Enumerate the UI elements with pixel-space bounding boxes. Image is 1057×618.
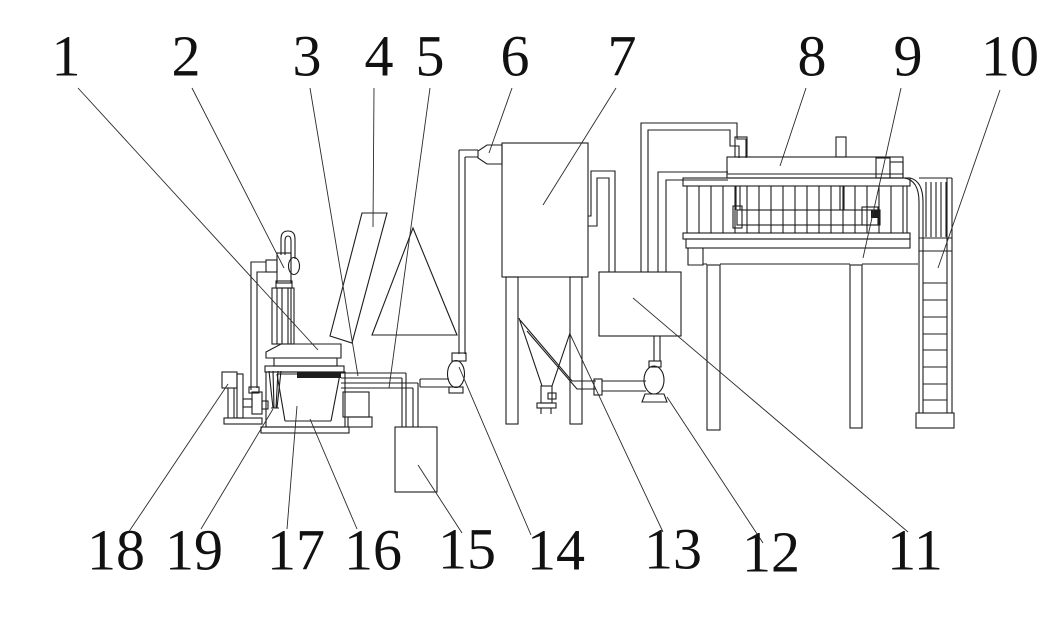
callout-label-16: 16 [344, 517, 402, 582]
platen-stack [265, 344, 344, 372]
callout-label-7: 7 [608, 23, 637, 88]
leader-8 [780, 88, 806, 166]
outlet-flange [537, 403, 556, 408]
vessel-leg-left [506, 277, 518, 424]
pump-base [642, 394, 667, 402]
platen [266, 344, 341, 358]
callout-label-3: 3 [293, 23, 322, 88]
callout-label-19: 19 [165, 517, 223, 582]
knob [289, 258, 300, 275]
top-cover [727, 157, 903, 178]
callout-label-12: 12 [742, 519, 800, 584]
funnel-outlet [541, 386, 552, 403]
callout-label-14: 14 [527, 517, 585, 582]
callout-label-9: 9 [894, 23, 923, 88]
frame-leg-left [707, 265, 720, 430]
callout-label-18: 18 [87, 517, 145, 582]
pump-cap [452, 353, 466, 361]
collection-box [395, 427, 437, 492]
tank-basin [277, 374, 340, 421]
guide-triangle [372, 228, 457, 335]
callout-label-15: 15 [438, 516, 496, 581]
ladder-base [916, 413, 954, 428]
leader-1 [78, 88, 318, 350]
pump-feed-pipe [420, 379, 449, 387]
callout-label-17: 17 [267, 517, 325, 582]
pump-riser [654, 336, 660, 361]
leader-3 [310, 88, 358, 376]
callout-label-5: 5 [416, 23, 445, 88]
leader-11 [633, 298, 908, 532]
callout-labels: 1 2 3 4 5 6 7 8 9 10 11 12 13 14 15 16 1… [52, 23, 1040, 584]
leader-4 [373, 88, 374, 227]
feed-pipe-left [459, 150, 478, 354]
callout-label-10: 10 [981, 23, 1039, 88]
leader-7 [543, 88, 616, 205]
top-rail [683, 178, 910, 186]
patent-figure-page: 1 2 3 4 5 6 7 8 9 10 11 12 13 14 15 16 1… [0, 0, 1057, 618]
scraper-bar [330, 213, 387, 343]
floor-deck [686, 239, 910, 248]
discharge-funnel [519, 318, 570, 414]
cover-step-left [735, 137, 747, 157]
press-column [272, 288, 294, 344]
motor-base [224, 418, 262, 424]
callout-label-11: 11 [887, 517, 943, 582]
pump-housing [644, 366, 664, 394]
pipe-bundle [341, 373, 449, 427]
frame-leg-right [850, 265, 862, 428]
leader-18 [128, 384, 228, 533]
patent-figure: 1 2 3 4 5 6 7 8 9 10 11 12 13 14 15 16 1… [0, 0, 1057, 618]
pump-left [448, 353, 467, 393]
callout-label-13: 13 [644, 516, 702, 581]
loop-pipe-inner [648, 130, 739, 272]
leader-5 [389, 88, 430, 388]
ladder-cage-slats [926, 182, 946, 237]
platform [683, 137, 918, 430]
callout-label-4: 4 [365, 23, 394, 88]
platform-feed-pipe [658, 172, 728, 272]
deck-step [688, 248, 703, 265]
vessel-leg-right [570, 277, 582, 424]
leader-14 [459, 367, 531, 535]
mixing-tank [261, 371, 372, 433]
agitator-motor [222, 372, 268, 424]
callout-label-8: 8 [798, 23, 827, 88]
leader-19 [201, 409, 273, 529]
coupling [252, 392, 262, 414]
leader-2 [192, 88, 284, 268]
tank-base [261, 427, 349, 433]
ladder [904, 178, 954, 428]
slot-nozzle [297, 372, 341, 378]
vessel-riser-outer [588, 171, 615, 272]
callout-label-2: 2 [172, 23, 201, 88]
inlet-nozzle [478, 145, 502, 164]
leader-17 [287, 406, 297, 529]
callout-label-6: 6 [501, 23, 530, 88]
spray-gun-assembly [249, 231, 300, 393]
motor-head [222, 372, 237, 388]
gun-base [276, 281, 292, 288]
right-bracket [343, 392, 369, 417]
barrel-hangers [736, 186, 844, 210]
drive-shaft [243, 399, 252, 407]
floor-rail [683, 233, 910, 239]
housing-step [890, 162, 903, 178]
vessel-shell [502, 143, 588, 277]
side-port [266, 260, 277, 272]
callout-label-1: 1 [52, 23, 81, 88]
cover-step-mid [836, 137, 846, 157]
agitator-cone [269, 371, 281, 408]
leader-16 [310, 419, 357, 529]
